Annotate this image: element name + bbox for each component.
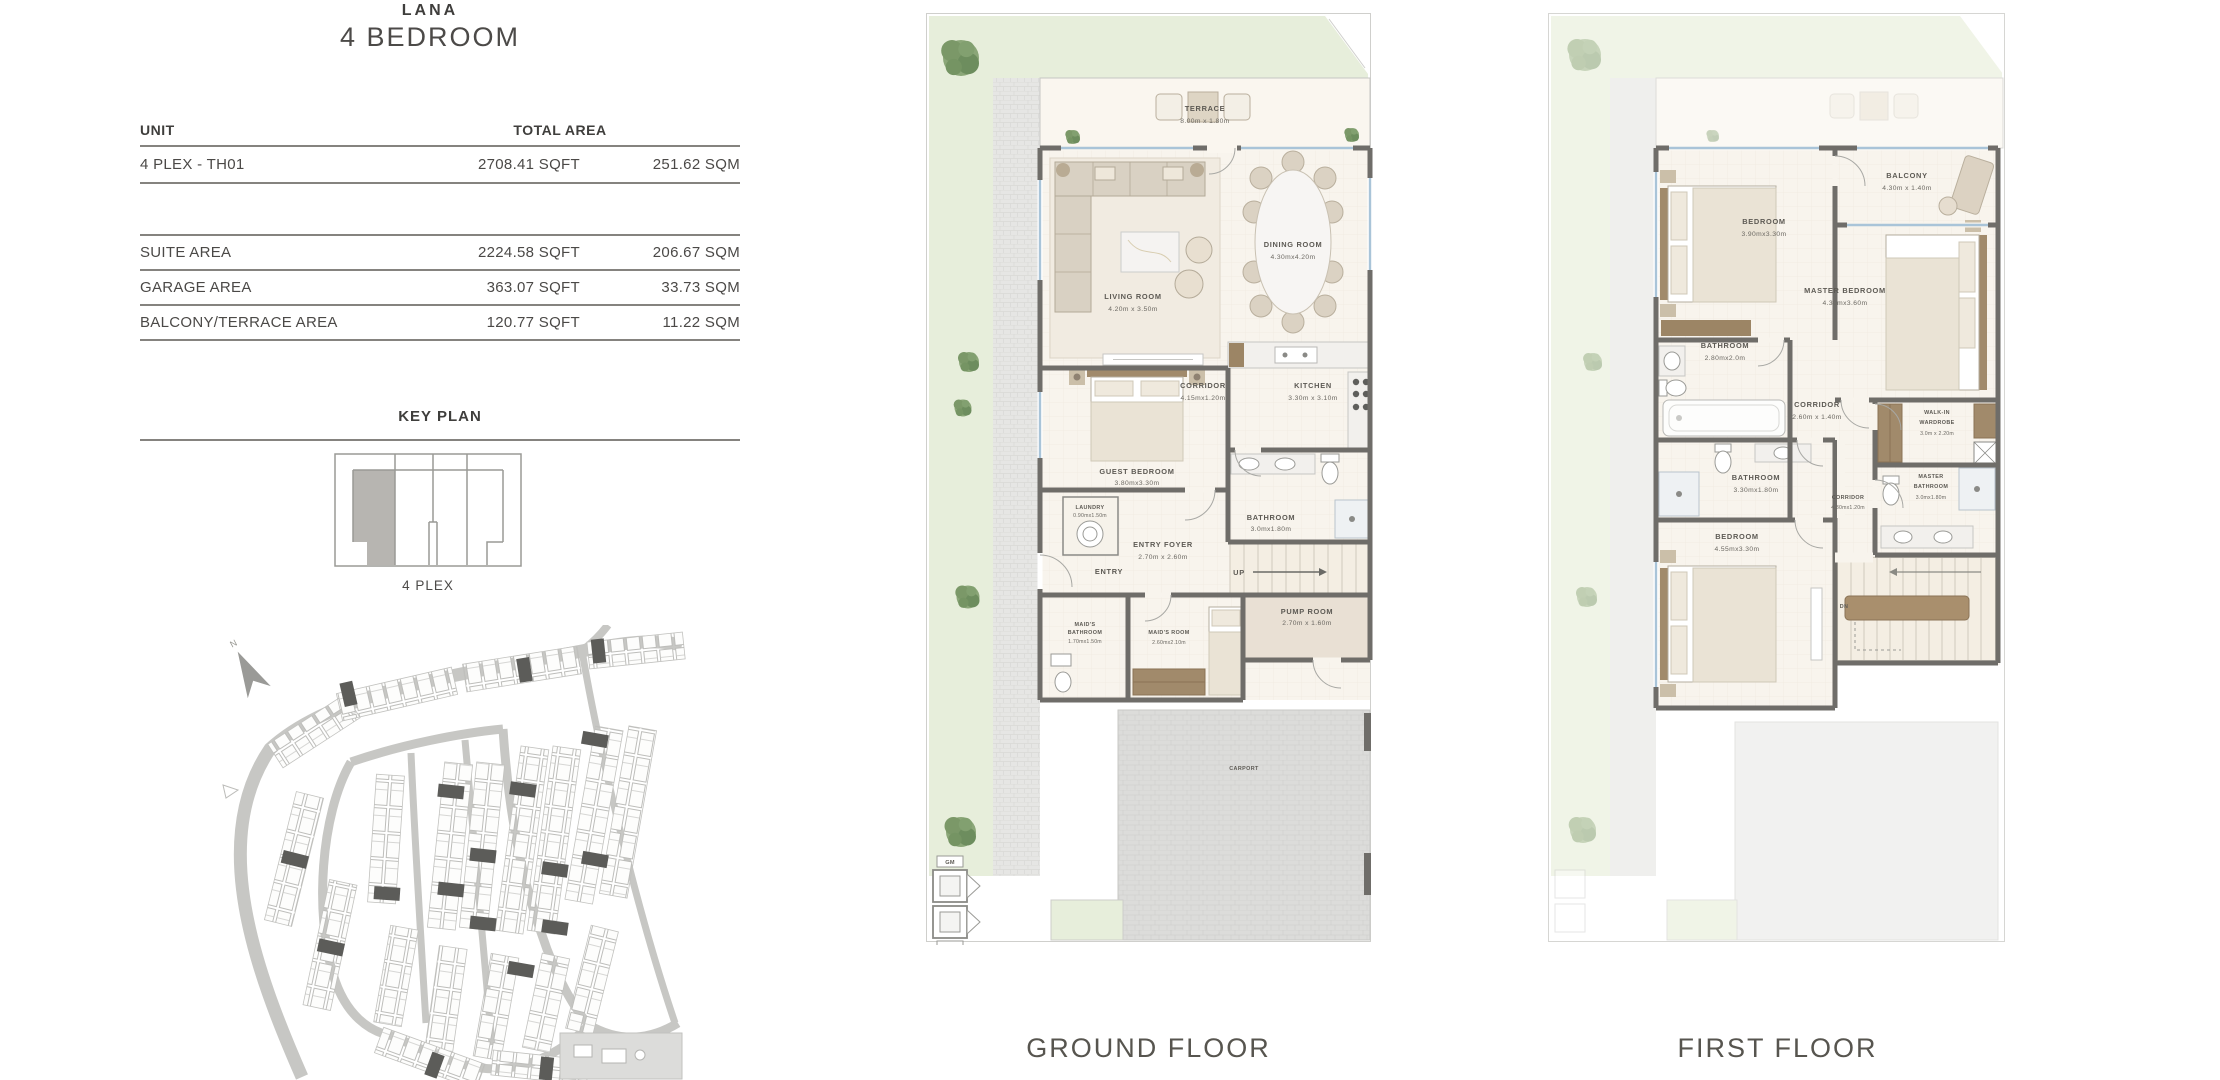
ground-floor-caption: GROUND FLOOR	[923, 1033, 1374, 1064]
walk-in-label-1: WALK-IN	[1924, 410, 1950, 416]
carport-label: CARPORT	[1229, 766, 1259, 772]
terrace-dims: 8.00m x 1.80m	[1180, 118, 1229, 125]
living-room-label: LIVING ROOM	[1104, 292, 1161, 301]
carport-area	[1118, 710, 1370, 940]
bathroom3-dims: 3.30mx1.80m	[1734, 487, 1779, 494]
stairs-up	[1230, 542, 1370, 594]
corridor2-dims: 4.30mx1.20m	[1831, 505, 1865, 511]
laundry-label: LAUNDRY	[1076, 505, 1105, 511]
maids-room-label: MAID'S ROOM	[1148, 630, 1189, 636]
balcony-area-label: BALCONY/TERRACE AREA	[140, 314, 380, 331]
amenity-parcel	[560, 1033, 682, 1079]
bathroom2-label: BATHROOM	[1701, 341, 1750, 350]
balcony-area-sqm: 11.22 SQM	[580, 314, 740, 331]
corridor1-label: CORRIDOR	[1794, 400, 1840, 409]
entry-foyer-dims: 2.70m x 2.60m	[1138, 554, 1187, 561]
bedroom3-dims: 4.55mx3.30m	[1715, 546, 1760, 553]
key-plan-caption: 4 PLEX	[333, 578, 523, 593]
bedroom2-furniture	[1660, 170, 1776, 317]
north-arrow-icon: N	[220, 633, 271, 698]
garden-left	[929, 16, 993, 876]
maids-bathroom-dims: 1.70mx1.50m	[1068, 639, 1102, 645]
suite-area-label: SUITE AREA	[140, 244, 380, 261]
table-header-row: UNIT TOTAL AREA	[140, 122, 740, 147]
living-room-furniture	[1050, 158, 1220, 365]
north-label: N	[228, 638, 238, 650]
table-row-suite: SUITE AREA 2224.58 SQFT 206.67 SQM	[140, 236, 740, 271]
stairs-down	[1838, 558, 1996, 661]
balcony-label: BALCONY	[1886, 171, 1927, 180]
living-room-dims: 4.20m x 3.50m	[1108, 306, 1157, 313]
master-bedroom-dims: 4.30mx3.60m	[1823, 300, 1868, 307]
garage-area-sqft: 363.07 SQFT	[380, 279, 580, 296]
floor-plan-sheet: LANA 4 BEDROOM UNIT TOTAL AREA 4 PLEX - …	[0, 0, 2220, 1080]
key-plan-title: KEY PLAN	[140, 408, 740, 441]
kitchen-dims: 3.30m x 3.10m	[1288, 395, 1337, 402]
up-label: UP	[1233, 568, 1245, 577]
unit-column-header: UNIT	[140, 122, 380, 138]
table-gap	[140, 184, 740, 234]
unit-row: 4 PLEX - TH01 2708.41 SQFT 251.62 SQM	[140, 147, 740, 184]
kitchen-label: KITCHEN	[1294, 381, 1332, 390]
laundry-dims: 0.90mx1.50m	[1073, 513, 1107, 519]
key-plan-diagram	[333, 452, 523, 570]
master-bedroom-furniture	[1886, 220, 1987, 390]
unit-total-sqft: 2708.41 SQFT	[380, 156, 580, 173]
balcony-dims: 4.30m x 1.40m	[1882, 185, 1931, 192]
walk-in-dims: 3.0m x 2.20m	[1920, 431, 1954, 437]
entry-label: ENTRY	[1095, 567, 1123, 576]
area-table: UNIT TOTAL AREA 4 PLEX - TH01 2708.41 SQ…	[140, 122, 740, 341]
bedroom2-dims: 3.90mx3.30m	[1742, 231, 1787, 238]
unit-name: 4 PLEX - TH01	[140, 156, 380, 173]
garage-area-label: GARAGE AREA	[140, 279, 380, 296]
table-row-garage: GARAGE AREA 363.07 SQFT 33.73 SQM	[140, 271, 740, 306]
walk-in-label-2: WARDROBE	[1919, 420, 1954, 426]
side-path	[993, 78, 1040, 876]
master-bathroom-label-1: MASTER	[1918, 474, 1943, 480]
maids-room-dims: 2.60mx2.10m	[1152, 640, 1186, 646]
bathroom2-dims: 2.80mx2.0m	[1705, 355, 1746, 362]
first-floor-caption: FIRST FLOOR	[1545, 1033, 2010, 1064]
guest-bedroom-label: GUEST BEDROOM	[1099, 467, 1174, 476]
guest-bedroom-dims: 3.80mx3.30m	[1115, 480, 1160, 487]
corridor-label: CORRIDOR	[1180, 381, 1226, 390]
bedroom2-label: BEDROOM	[1742, 217, 1786, 226]
master-bathroom-dims: 3.0mx1.80m	[1916, 495, 1947, 501]
unit-type-title: 4 BEDROOM	[100, 22, 760, 53]
carport-wall-stub	[1364, 713, 1371, 751]
ground-floor-plan: TERRACE 8.00m x 1.80m LIVING ROOM 4.20m …	[923, 10, 1374, 945]
corridor2-label: CORRIDOR	[1832, 495, 1865, 501]
roundabout-island	[223, 785, 238, 798]
dining-room-dims: 4.30mx4.20m	[1271, 254, 1316, 261]
pump-room-label: PUMP ROOM	[1281, 607, 1334, 616]
entry-foyer-label: ENTRY FOYER	[1133, 540, 1193, 549]
master-bathroom-label-2: BATHROOM	[1914, 484, 1949, 490]
carport-wall-stub	[1364, 853, 1371, 895]
bedroom3-label: BEDROOM	[1715, 532, 1759, 541]
highlighted-unit	[353, 470, 395, 565]
total-area-column-header: TOTAL AREA	[380, 122, 740, 138]
bathroom-label: BATHROOM	[1247, 513, 1296, 522]
maids-bathroom-label-2: BATHROOM	[1068, 630, 1103, 636]
master-bedroom-label: MASTER BEDROOM	[1804, 286, 1886, 295]
dn-label: DN	[1840, 604, 1849, 610]
garage-area-sqm: 33.73 SQM	[580, 279, 740, 296]
dining-room-label: DINING ROOM	[1264, 240, 1323, 249]
table-row-balcony: BALCONY/TERRACE AREA 120.77 SQFT 11.22 S…	[140, 306, 740, 341]
first-floor-plan: BALCONY 4.30m x 1.40m BEDROOM 3.90mx3.30…	[1545, 10, 2010, 945]
bathroom3-label: BATHROOM	[1732, 473, 1781, 482]
unit-total-sqm: 251.62 SQM	[580, 156, 740, 173]
terrace-label: TERRACE	[1185, 104, 1226, 113]
suite-area-sqm: 206.67 SQM	[580, 244, 740, 261]
corridor-dims: 4.15mx1.20m	[1181, 395, 1226, 402]
corridor1-dims: 2.60m x 1.40m	[1792, 414, 1841, 421]
area-breakdown: SUITE AREA 2224.58 SQFT 206.67 SQM GARAG…	[140, 234, 740, 341]
gas-meter-label: GM	[945, 860, 955, 866]
project-name: LANA	[100, 2, 760, 20]
suite-area-sqft: 2224.58 SQFT	[380, 244, 580, 261]
garden-patch	[1051, 900, 1123, 940]
pump-room-dims: 2.70m x 1.60m	[1282, 620, 1331, 627]
maids-bathroom-label-1: MAID'S	[1074, 622, 1095, 628]
balcony-area-sqft: 120.77 SQFT	[380, 314, 580, 331]
garden-top	[929, 16, 1368, 78]
bathroom-dims: 3.0mx1.80m	[1251, 526, 1292, 533]
site-map: N	[130, 625, 710, 1080]
